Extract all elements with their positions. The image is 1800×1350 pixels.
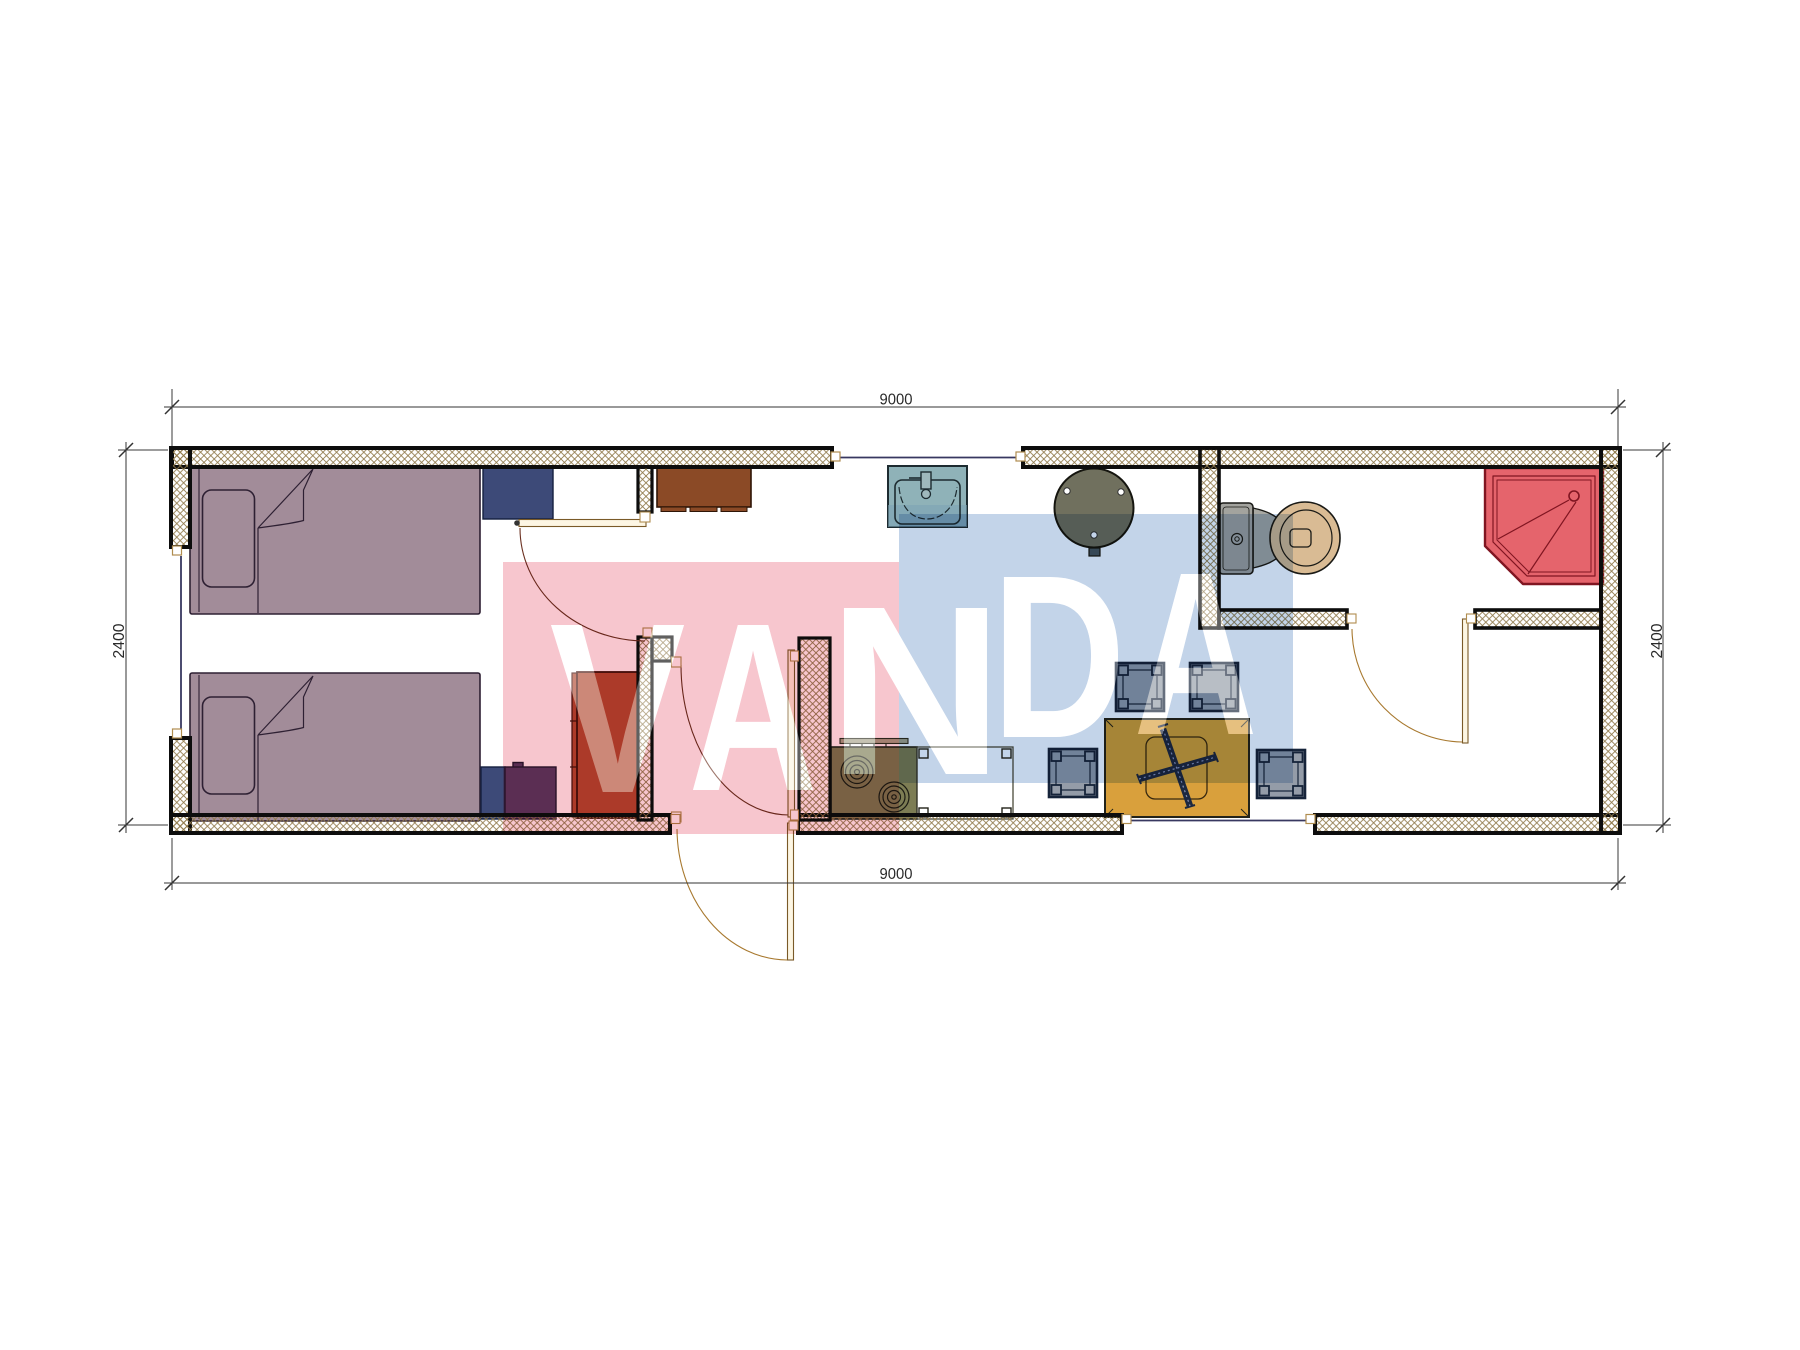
svg-text:9000: 9000	[880, 392, 913, 409]
svg-text:2400: 2400	[111, 623, 128, 658]
svg-text:9000: 9000	[880, 866, 913, 883]
svg-text:2400: 2400	[1649, 623, 1666, 658]
